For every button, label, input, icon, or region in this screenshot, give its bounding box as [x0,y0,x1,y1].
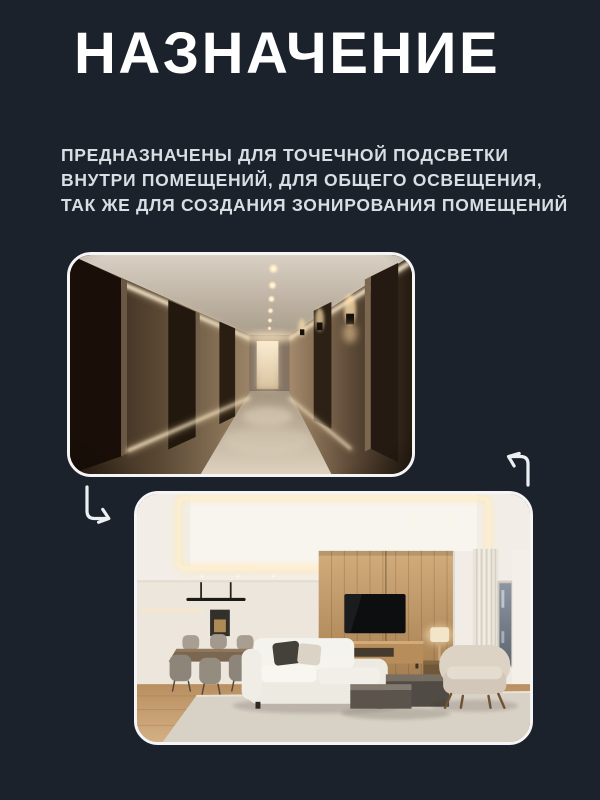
turn-up-left-arrow-icon [501,447,535,487]
page-title: НАЗНАЧЕНИЕ [74,24,500,85]
page-description: ПРЕДНАЗНАЧЕНЫ ДЛЯ ТОЧЕЧНОЙ ПОДСВЕТКИ ВНУ… [61,143,568,218]
turn-down-right-arrow-glyph [79,485,117,531]
corridor-photo-card [67,252,415,477]
living-room-photo-card [134,491,533,745]
corridor-photo-illustration [70,255,412,474]
poster-background: НАЗНАЧЕНИЕ ПРЕДНАЗНАЧЕНЫ ДЛЯ ТОЧЕЧНОЙ ПО… [0,0,600,800]
living-room-photo-illustration [137,494,530,742]
description-line-3: ТАК ЖЕ ДЛЯ СОЗДАНИЯ ЗОНИРОВАНИЯ ПОМЕЩЕНИ… [61,193,568,218]
turn-up-left-arrow-glyph [501,447,535,487]
description-line-1: ПРЕДНАЗНАЧЕНЫ ДЛЯ ТОЧЕЧНОЙ ПОДСВЕТКИ [61,143,568,168]
turn-down-right-arrow-icon [79,485,117,531]
description-line-2: ВНУТРИ ПОМЕЩЕНИЙ, ДЛЯ ОБЩЕГО ОСВЕЩЕНИЯ, [61,168,568,193]
